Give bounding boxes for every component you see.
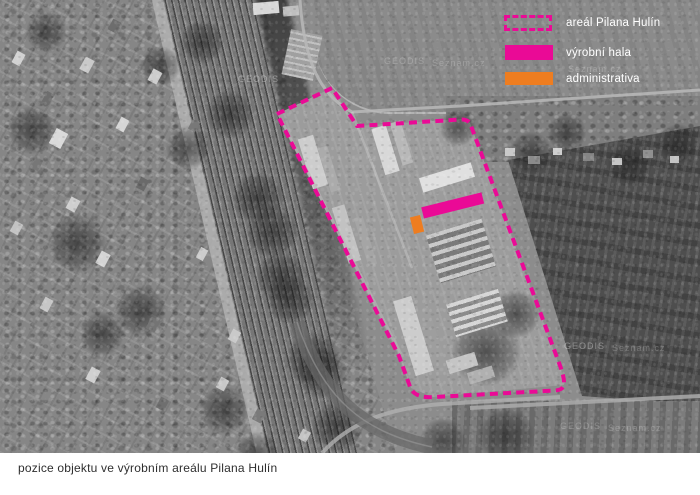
figure-page: GEODIS GEODIS Seznam.cz Seznam.cz GEODIS…: [0, 0, 700, 495]
figure-caption: pozice objektu ve výrobním areálu Pilana…: [18, 461, 277, 475]
legend-label-areal: areál Pilana Hulín: [566, 17, 660, 29]
areal-outline: [277, 88, 564, 397]
road: [352, 112, 412, 268]
rail-siding-curve: [297, 322, 432, 447]
administrativa-swatch: [505, 72, 553, 85]
aerial-map: GEODIS GEODIS Seznam.cz Seznam.cz GEODIS…: [0, 0, 700, 453]
vyrobni-hala-marker: [421, 192, 484, 218]
vyrobni-hala-swatch: [505, 45, 553, 60]
areal-outline-swatch: [504, 15, 552, 31]
administrativa-marker: [410, 215, 424, 234]
legend-label-vyrobni-hala: výrobní hala: [566, 47, 631, 59]
legend-label-administrativa: administrativa: [566, 73, 640, 85]
map-legend: areál Pilana Hulín výrobní hala administ…: [504, 14, 700, 94]
